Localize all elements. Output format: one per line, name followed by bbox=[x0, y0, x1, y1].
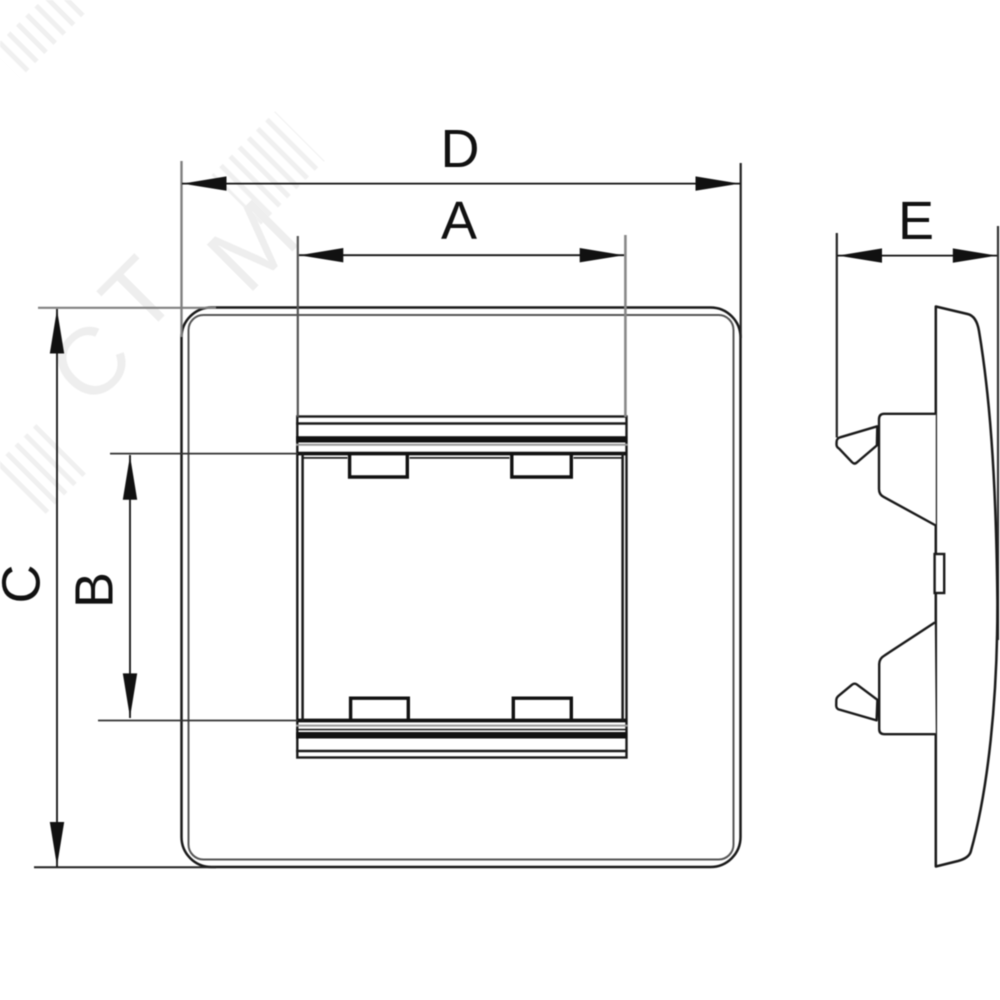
svg-text:B: B bbox=[65, 572, 125, 608]
svg-text:A: A bbox=[441, 191, 477, 251]
svg-text:D: D bbox=[441, 119, 480, 179]
svg-text:C: C bbox=[0, 565, 52, 604]
svg-text:E: E bbox=[898, 191, 934, 251]
